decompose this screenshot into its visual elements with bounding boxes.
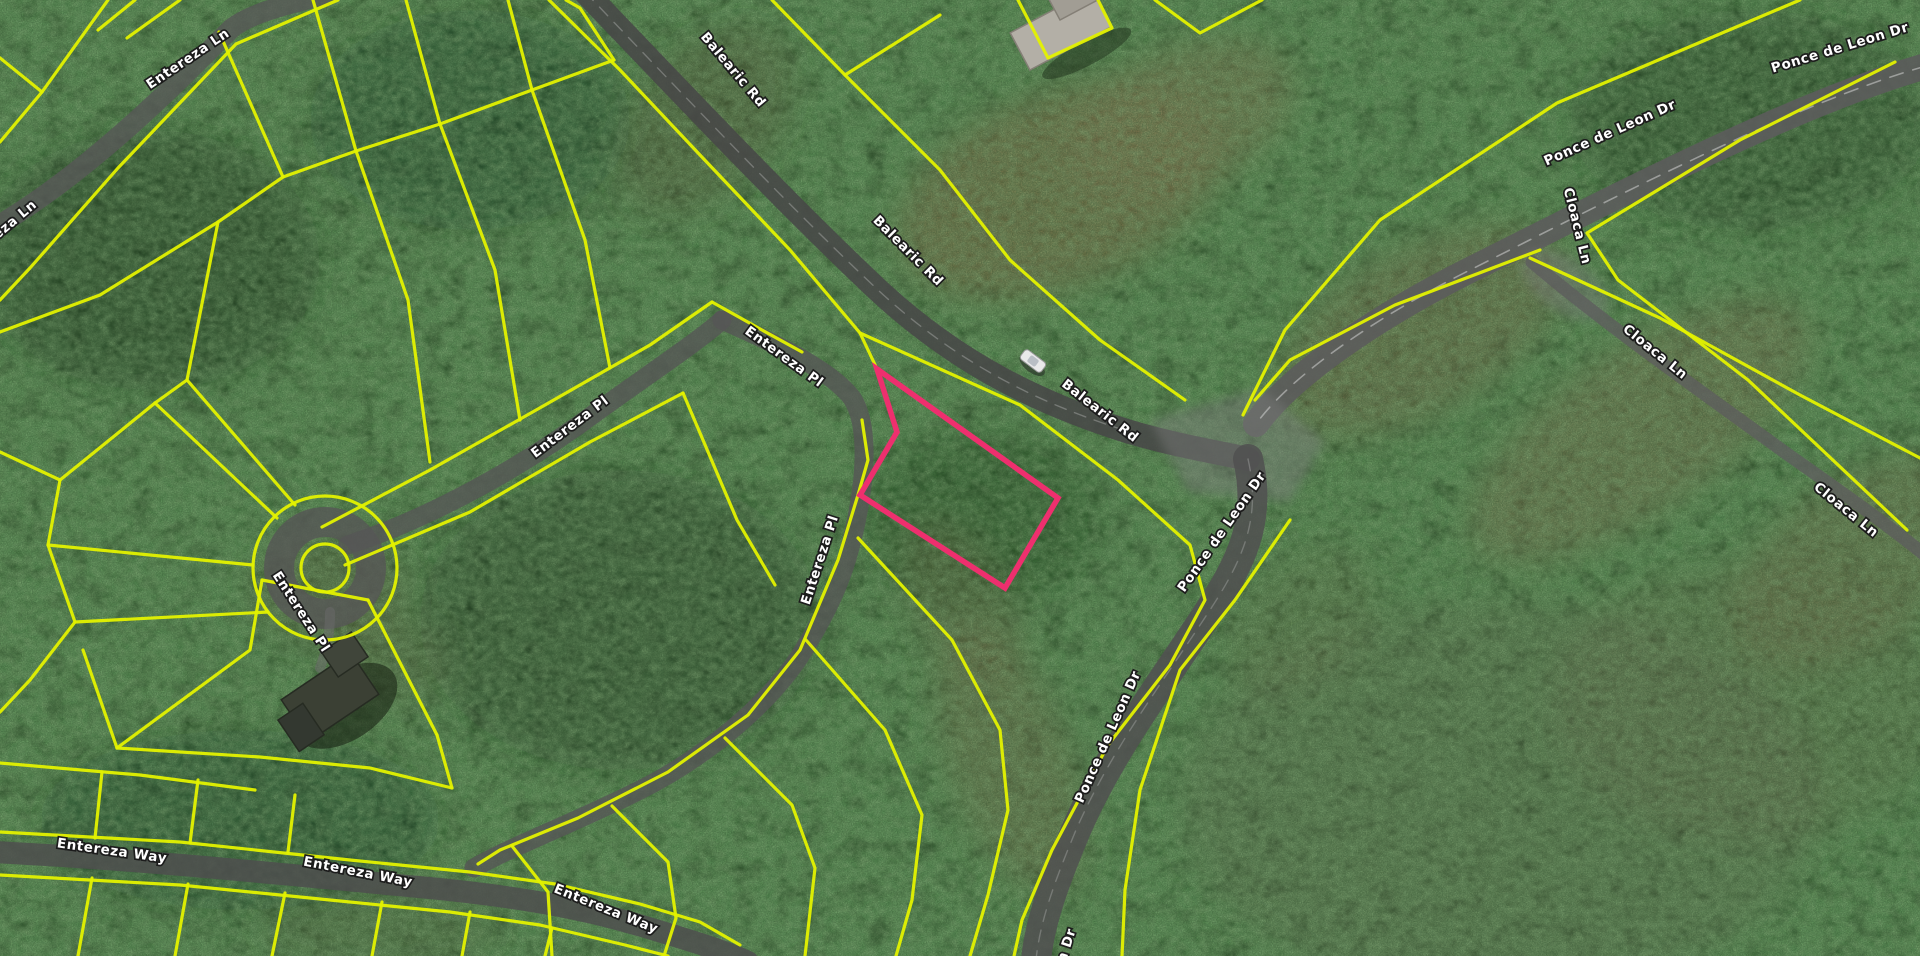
map-viewport[interactable]: Entereza LnEntereza LnBalearic RdBaleari… (0, 0, 1920, 956)
terrain-layer (0, 0, 1920, 956)
satellite-map-canvas[interactable]: Entereza LnEntereza LnBalearic RdBaleari… (0, 0, 1920, 956)
